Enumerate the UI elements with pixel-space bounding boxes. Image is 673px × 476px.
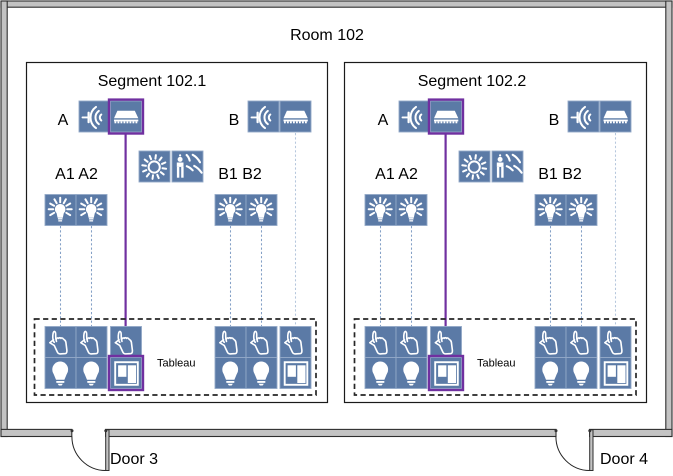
svg-text:Room 102: Room 102 [290,27,364,44]
svg-text:A: A [58,112,69,129]
svg-text:Tableau: Tableau [157,358,196,370]
svg-text:A: A [378,112,389,129]
svg-text:Segment 102.1: Segment 102.1 [98,73,207,90]
svg-text:Door 3: Door 3 [110,451,158,468]
svg-text:Segment 102.2: Segment 102.2 [418,73,527,90]
svg-text:B: B [229,112,240,129]
svg-text:A1 A2: A1 A2 [375,166,418,183]
svg-text:A1 A2: A1 A2 [55,166,98,183]
svg-text:Tableau: Tableau [477,358,516,370]
svg-text:B: B [549,112,560,129]
svg-text:B1 B2: B1 B2 [218,166,262,183]
svg-text:B1 B2: B1 B2 [538,166,582,183]
svg-text:Door 4: Door 4 [600,451,648,468]
